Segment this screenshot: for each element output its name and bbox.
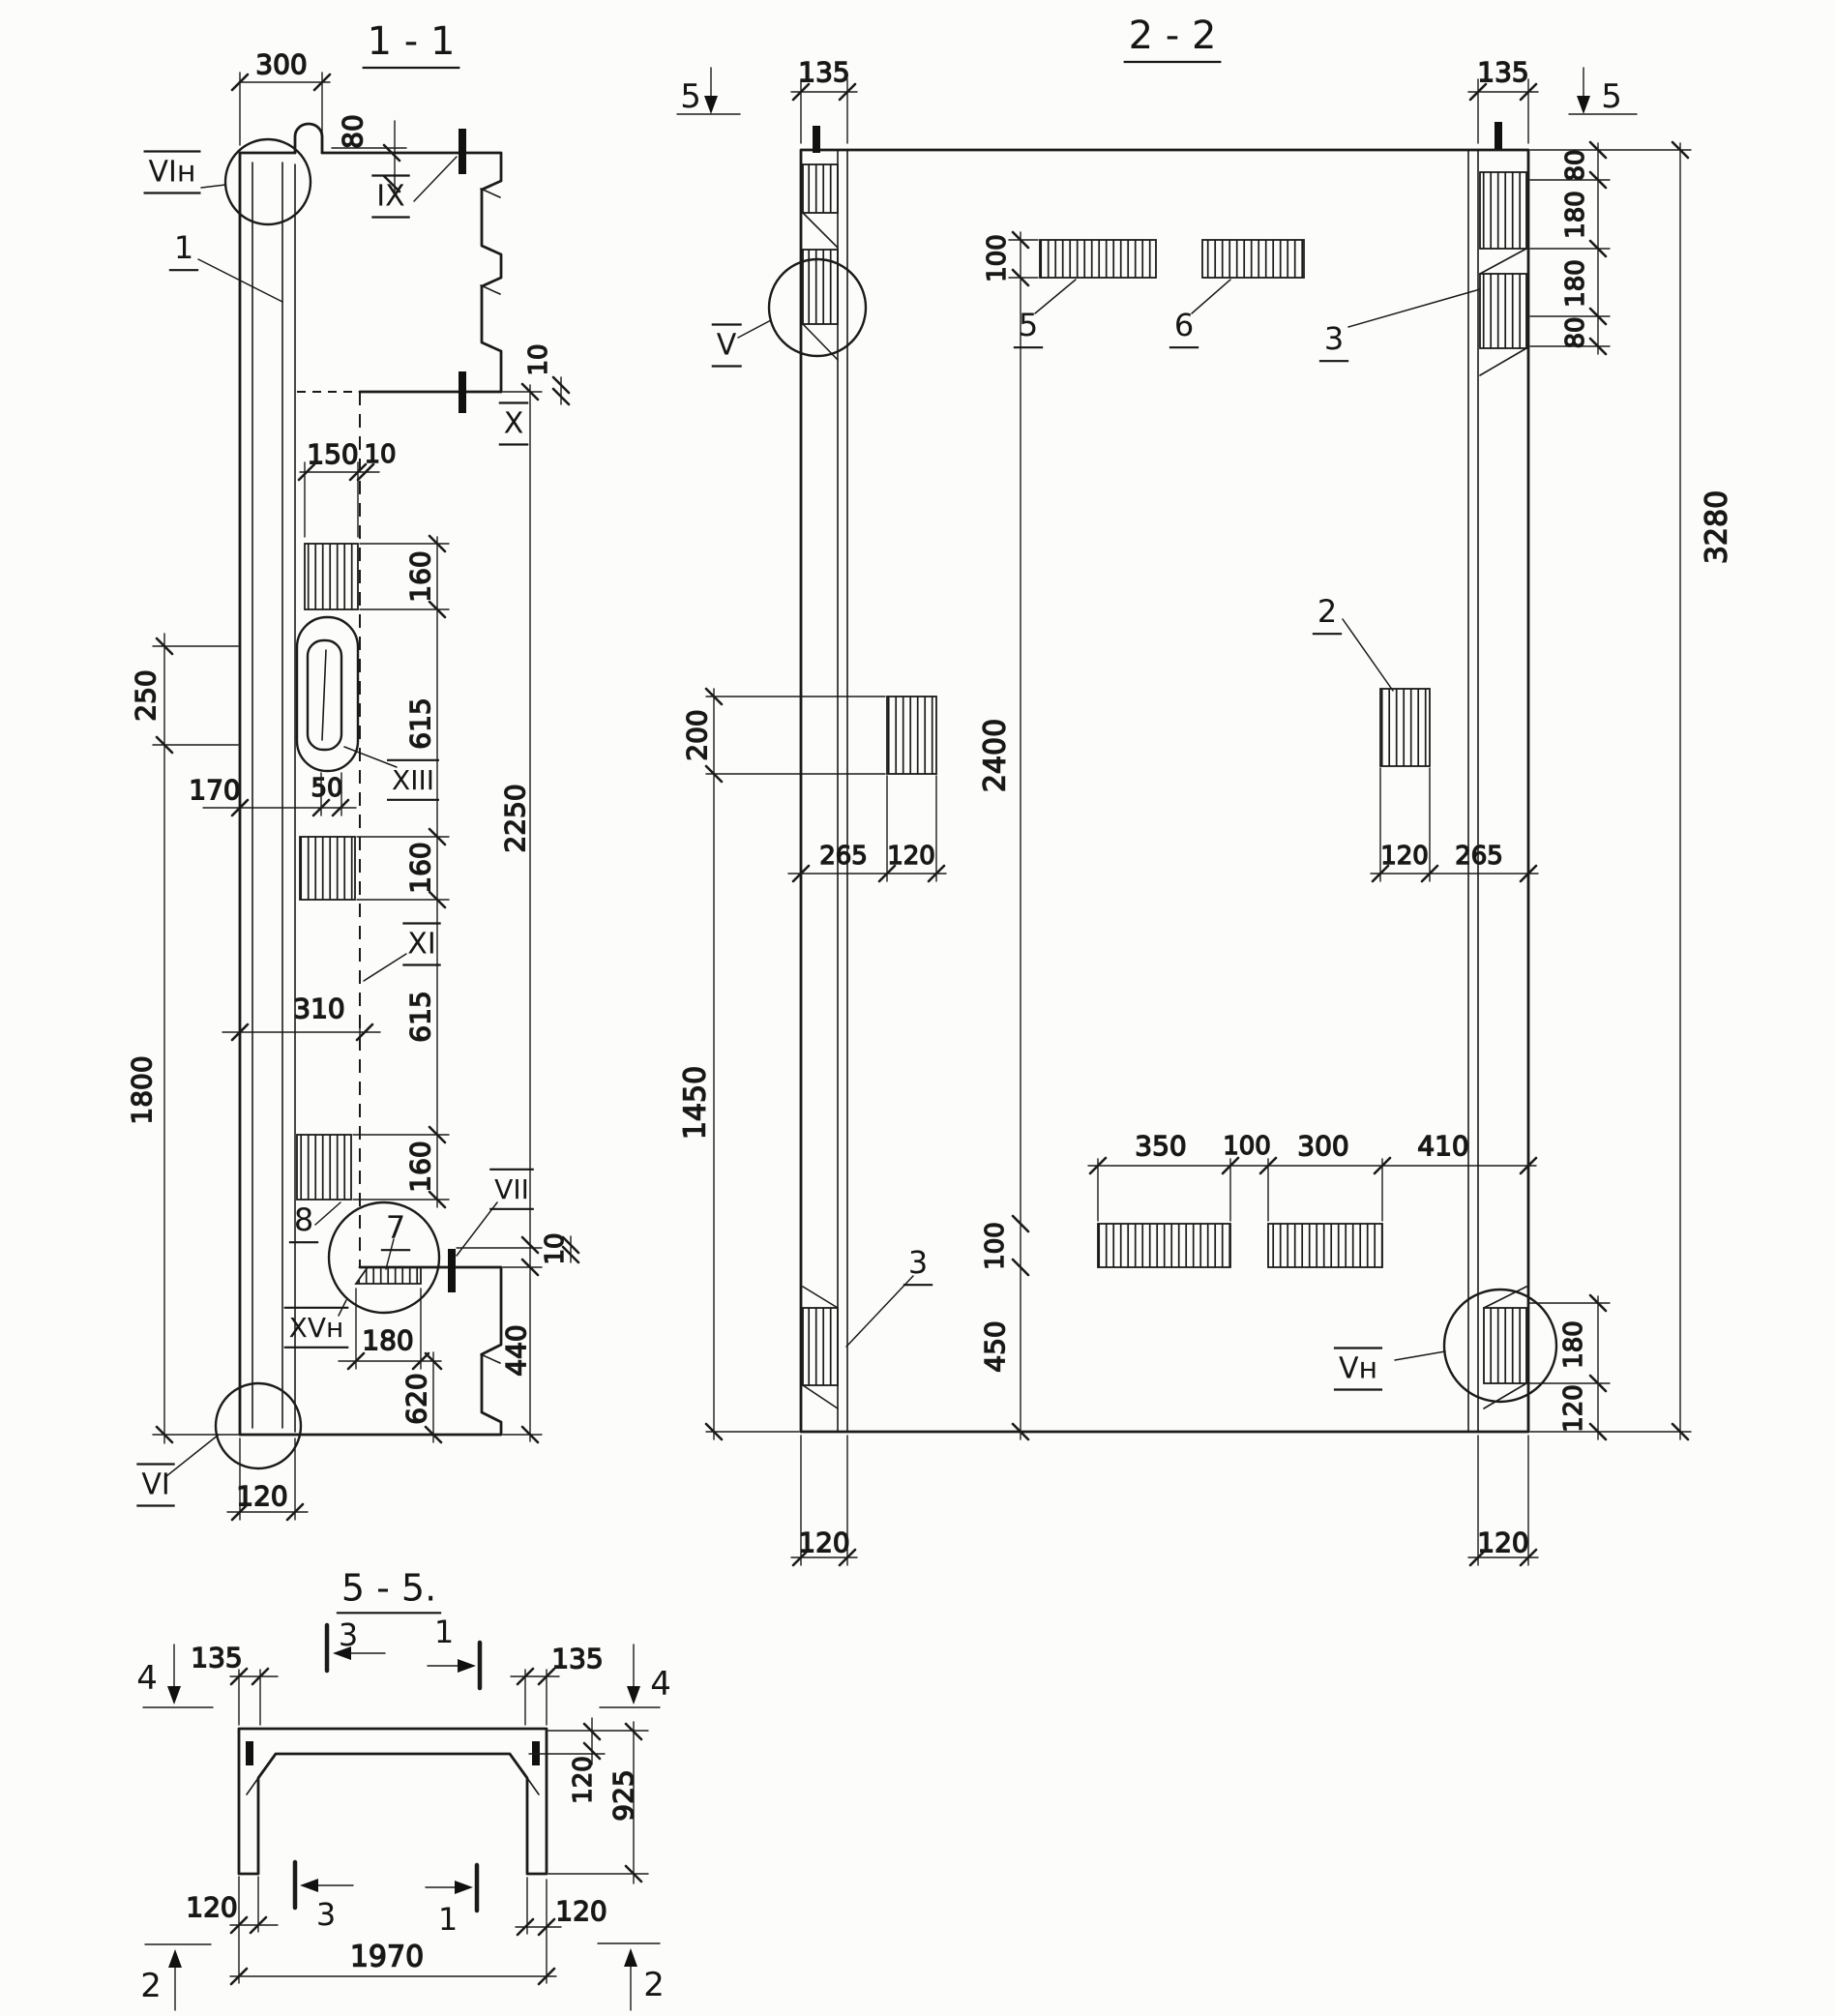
- v2-dim-120-l-text: 120: [887, 842, 935, 871]
- v5-dim-1970: 1970: [350, 1941, 424, 1974]
- v1-title: 1 - 1: [363, 19, 460, 68]
- v5-marker-3-bot: 3: [316, 1896, 336, 1933]
- embed-plate-low: [297, 1135, 351, 1200]
- v5-dim-135-left: 135: [191, 1642, 242, 1674]
- v1-dim-10-topright-text: 10: [524, 343, 553, 375]
- v2-marker-5-left-text: 5: [680, 77, 701, 116]
- v5-dim-120-leg-l: 120: [186, 1891, 237, 1923]
- v5-marker-1-top-text: 1: [434, 1614, 454, 1650]
- v1-label-vi-n: VIн: [144, 152, 201, 193]
- v5-dim-120-slab-text: 120: [569, 1756, 598, 1804]
- v5-dim-120-leg-r: 120: [555, 1895, 607, 1927]
- v2-dim-120-bot-r-text: 120: [1559, 1384, 1588, 1433]
- v1-dim-300-text: 300: [255, 48, 307, 80]
- v2-dim-180-b: 180: [1561, 259, 1590, 308]
- v1-label-xi: XI: [402, 924, 440, 965]
- v2-label-v: V: [712, 325, 742, 367]
- v1-dim-310: 310: [293, 993, 344, 1024]
- v2-dim-2400: 2400: [979, 719, 1013, 792]
- v1-label-vi-text: VI: [141, 1468, 169, 1502]
- v1-dim-160-b: 160: [404, 842, 436, 893]
- v5-marker-1-top: 1: [434, 1614, 454, 1650]
- v1-label-xiii-text: XIII: [392, 764, 434, 796]
- v1-dim-250: 250: [130, 669, 162, 721]
- v1-dim-440-text: 440: [500, 1324, 532, 1376]
- v5-title-text: 5 - 5.: [341, 1566, 436, 1609]
- v2-dim-3280-text: 3280: [1701, 490, 1734, 564]
- v1-dim-160-c-text: 160: [404, 1141, 436, 1192]
- v5-dim-120-leg-r-text: 120: [555, 1895, 607, 1927]
- v5-marker-2-right: 2: [643, 1966, 665, 2004]
- v2-callout-5-text: 5: [1019, 307, 1038, 343]
- v2-callout-3-top-text: 3: [1324, 320, 1344, 357]
- v2-dim-265-r-text: 265: [1455, 842, 1503, 871]
- v2-dim-100-mid: 100: [1223, 1132, 1271, 1161]
- v1-dim-160-c: 160: [404, 1141, 436, 1192]
- v2-dim-135-left-text: 135: [798, 56, 849, 88]
- v2-dim-410: 410: [1417, 1130, 1468, 1162]
- v1-label-vi: VI: [136, 1465, 174, 1506]
- v2-dim-300-text: 300: [1297, 1130, 1348, 1162]
- v2-marker-5-left: 5: [680, 77, 701, 116]
- channel-outline-5-5: [239, 1729, 547, 1874]
- v1-dim-150: 150: [307, 438, 358, 470]
- v2-label-v-n: Vн: [1334, 1349, 1382, 1390]
- v1-dim-250-text: 250: [130, 669, 162, 721]
- v1-dim-10-topright: 10: [524, 343, 553, 375]
- v1-dim-10-a: 10: [364, 440, 396, 469]
- v5-marker-2-right-text: 2: [643, 1966, 665, 2004]
- v1-dim-2250: 2250: [499, 784, 531, 852]
- v2-dim-410-text: 410: [1417, 1130, 1468, 1162]
- embed-plate-mid: [300, 837, 355, 900]
- v2-dim-100-top: 100: [983, 234, 1012, 282]
- v1-dim-170: 170: [189, 774, 240, 806]
- v2-dim-450: 450: [979, 1320, 1011, 1372]
- v1-dim-620-text: 620: [400, 1373, 432, 1424]
- v2-callout-2: 2: [1313, 593, 1342, 634]
- v1-dim-50: 50: [311, 774, 342, 803]
- v5-dim-135-right: 135: [551, 1643, 603, 1675]
- detail-circle-vi: [216, 1383, 301, 1468]
- v5-marker-4-left-text: 4: [136, 1659, 158, 1698]
- v2-dim-100-mid-text: 100: [1223, 1132, 1271, 1161]
- patch-left: [887, 697, 936, 774]
- v5-title: 5 - 5.: [337, 1566, 441, 1613]
- v5-dim-120-slab: 120: [569, 1756, 598, 1804]
- drawing-sheet: 1 - 130080VIн1IX10X15010160XIII250170506…: [0, 0, 1835, 2016]
- v5-dim-925: 925: [607, 1769, 639, 1821]
- v1-label-xi-text: XI: [407, 928, 435, 962]
- v1-dim-170-text: 170: [189, 774, 240, 806]
- v2-marker-5-right: 5: [1601, 77, 1622, 116]
- v2-dim-2400-text: 2400: [979, 719, 1013, 792]
- v1-callout-7: 7: [381, 1209, 410, 1250]
- v2-dim-1450: 1450: [679, 1066, 713, 1140]
- v1-label-vii: VII: [489, 1170, 534, 1209]
- v2-dim-120-l: 120: [887, 842, 935, 871]
- rib-hatch-bands: [803, 164, 1526, 1408]
- v1-dim-615-b: 615: [404, 991, 436, 1042]
- section-outline-1-1: [240, 124, 501, 1435]
- v2-title: 2 - 2: [1124, 14, 1222, 62]
- v2-dim-120-bot-r: 120: [1559, 1384, 1588, 1433]
- v2-dim-80-t-text: 80: [1561, 149, 1590, 181]
- v2-dim-120-col-l-text: 120: [798, 1527, 849, 1558]
- v2-dim-135-right-text: 135: [1477, 56, 1528, 88]
- v2-dim-135-left: 135: [798, 56, 849, 88]
- v5-marker-2-left-text: 2: [140, 1967, 162, 2005]
- v1-callout-8-text: 8: [294, 1201, 313, 1238]
- v2-dim-180-a: 180: [1561, 191, 1590, 239]
- v1-dim-80: 80: [337, 114, 369, 149]
- view-2-2: [677, 68, 1691, 1565]
- v1-dim-180-text: 180: [362, 1324, 413, 1356]
- v1-dim-50-text: 50: [311, 774, 342, 803]
- v1-label-vi-n-text: VIн: [149, 156, 196, 190]
- v1-dim-310-text: 310: [293, 993, 344, 1024]
- v2-dim-450-text: 450: [979, 1320, 1011, 1372]
- embed-strips-2-2: [887, 240, 1430, 1267]
- v2-marker-5-right-text: 5: [1601, 77, 1622, 116]
- v1-label-x-text: X: [504, 407, 524, 441]
- v1-label-xiii: XIII: [387, 760, 439, 800]
- v2-dim-180-bot: 180: [1559, 1320, 1588, 1369]
- dimensions-2-2: [706, 79, 1691, 1565]
- patch-2: [1380, 689, 1430, 766]
- v5-dim-135-right-text: 135: [551, 1643, 603, 1675]
- v2-dim-265-l: 265: [819, 842, 868, 871]
- v2-dim-350: 350: [1135, 1130, 1186, 1162]
- v2-title-text: 2 - 2: [1129, 14, 1217, 58]
- v2-callout-3-top: 3: [1319, 320, 1348, 361]
- strip-5: [1040, 240, 1156, 278]
- v2-dim-135-right: 135: [1477, 56, 1528, 88]
- v2-callout-6: 6: [1169, 307, 1199, 347]
- v2-dim-100-bot: 100: [981, 1222, 1010, 1270]
- v5-marker-1-bot: 1: [438, 1901, 458, 1938]
- v1-label-vii-text: VII: [494, 1173, 529, 1205]
- v5-marker-4-right: 4: [650, 1665, 671, 1704]
- v1-title-text: 1 - 1: [368, 19, 456, 64]
- v2-dim-200-text: 200: [681, 709, 713, 760]
- v2-label-v-text: V: [717, 329, 737, 363]
- bearing-plate: [356, 1267, 421, 1284]
- v1-dim-180: 180: [362, 1324, 413, 1356]
- v2-dim-1450-text: 1450: [679, 1066, 713, 1140]
- v1-dim-620: 620: [400, 1373, 432, 1424]
- v1-callout-1-text: 1: [174, 229, 193, 266]
- v1-dim-150-text: 150: [307, 438, 358, 470]
- strip-350: [1098, 1224, 1230, 1267]
- drawing-canvas: 1 - 130080VIн1IX10X15010160XIII250170506…: [0, 0, 1835, 2016]
- v1-dim-2250-text: 2250: [499, 784, 531, 852]
- v2-dim-200: 200: [681, 709, 713, 760]
- v2-dim-350-text: 350: [1135, 1130, 1186, 1162]
- v1-dim-1800-text: 1800: [126, 1055, 158, 1124]
- v1-dim-615-b-text: 615: [404, 991, 436, 1042]
- v1-label-xv-n: XVн: [284, 1308, 349, 1348]
- v2-dim-265-l-text: 265: [819, 842, 868, 871]
- lifting-loop: [295, 124, 322, 153]
- v1-dim-160-a: 160: [404, 550, 436, 602]
- v1-dim-440: 440: [500, 1324, 532, 1376]
- v2-dim-100-top-text: 100: [983, 234, 1012, 282]
- v2-dim-80-t: 80: [1561, 149, 1590, 181]
- v2-dim-180-a-text: 180: [1561, 191, 1590, 239]
- v2-callout-5: 5: [1014, 307, 1043, 347]
- strip-300: [1268, 1224, 1382, 1267]
- strip-6: [1202, 240, 1304, 278]
- v1-dim-10-bottom: 10: [541, 1232, 570, 1264]
- v2-dim-120-col-r: 120: [1477, 1527, 1528, 1558]
- v1-dim-10-a-text: 10: [364, 440, 396, 469]
- v2-dim-3280: 3280: [1701, 490, 1734, 564]
- v2-dim-180-bot-text: 180: [1559, 1320, 1588, 1369]
- v5-dim-925-text: 925: [607, 1769, 639, 1821]
- v2-dim-180-b-text: 180: [1561, 259, 1590, 308]
- v1-label-ix: IX: [371, 176, 409, 218]
- v5-marker-3-top: 3: [339, 1616, 358, 1653]
- v1-label-ix-text: IX: [376, 180, 404, 214]
- v5-dim-1970-text: 1970: [350, 1941, 424, 1974]
- v1-dim-300: 300: [255, 48, 307, 80]
- v2-callout-3-bot-text: 3: [908, 1244, 928, 1281]
- v5-dim-120-leg-l-text: 120: [186, 1891, 237, 1923]
- v5-marker-3-top-text: 3: [339, 1616, 358, 1653]
- v5-dim-135-left-text: 135: [191, 1642, 242, 1674]
- v2-dim-120-col-l: 120: [798, 1527, 849, 1558]
- v1-callout-7-text: 7: [386, 1209, 405, 1246]
- detail-circle-7: [329, 1202, 439, 1313]
- v1-dim-615-a-text: 615: [404, 697, 436, 749]
- v2-label-v-n-text: Vн: [1339, 1352, 1377, 1386]
- v2-dim-80-b-text: 80: [1561, 316, 1590, 348]
- v5-marker-4-right-text: 4: [650, 1665, 671, 1704]
- v5-marker-2-left: 2: [140, 1967, 162, 2005]
- v2-callout-3-bot: 3: [903, 1244, 932, 1285]
- v2-dim-100-bot-text: 100: [981, 1222, 1010, 1270]
- v1-dim-120: 120: [236, 1480, 287, 1512]
- v2-callout-6-text: 6: [1174, 307, 1194, 343]
- v1-callout-8: 8: [289, 1201, 318, 1242]
- v2-callout-2-text: 2: [1317, 593, 1337, 630]
- v5-marker-1-bot-text: 1: [438, 1901, 458, 1938]
- v1-dim-80-text: 80: [337, 114, 369, 149]
- leader-lines-2-2: [738, 280, 1480, 1360]
- v1-callout-1: 1: [169, 229, 198, 270]
- v1-dim-10-bottom-text: 10: [541, 1232, 570, 1264]
- v5-marker-4-left: 4: [136, 1659, 158, 1698]
- v1-dim-615-a: 615: [404, 697, 436, 749]
- embed-plate-top: [305, 544, 358, 609]
- v2-dim-265-r: 265: [1455, 842, 1503, 871]
- v1-dim-160-a-text: 160: [404, 550, 436, 602]
- v1-dim-160-b-text: 160: [404, 842, 436, 893]
- v1-dim-120-text: 120: [236, 1480, 287, 1512]
- v2-dim-120-r-text: 120: [1380, 842, 1429, 871]
- v5-marker-3-bot-text: 3: [316, 1896, 336, 1933]
- v2-dim-80-b: 80: [1561, 316, 1590, 348]
- v2-dim-120-col-r-text: 120: [1477, 1527, 1528, 1558]
- v1-label-x: X: [499, 403, 529, 445]
- v1-dim-1800: 1800: [126, 1055, 158, 1124]
- v2-dim-120-r: 120: [1380, 842, 1429, 871]
- v1-label-xv-n-text: XVн: [289, 1312, 344, 1344]
- v2-dim-300: 300: [1297, 1130, 1348, 1162]
